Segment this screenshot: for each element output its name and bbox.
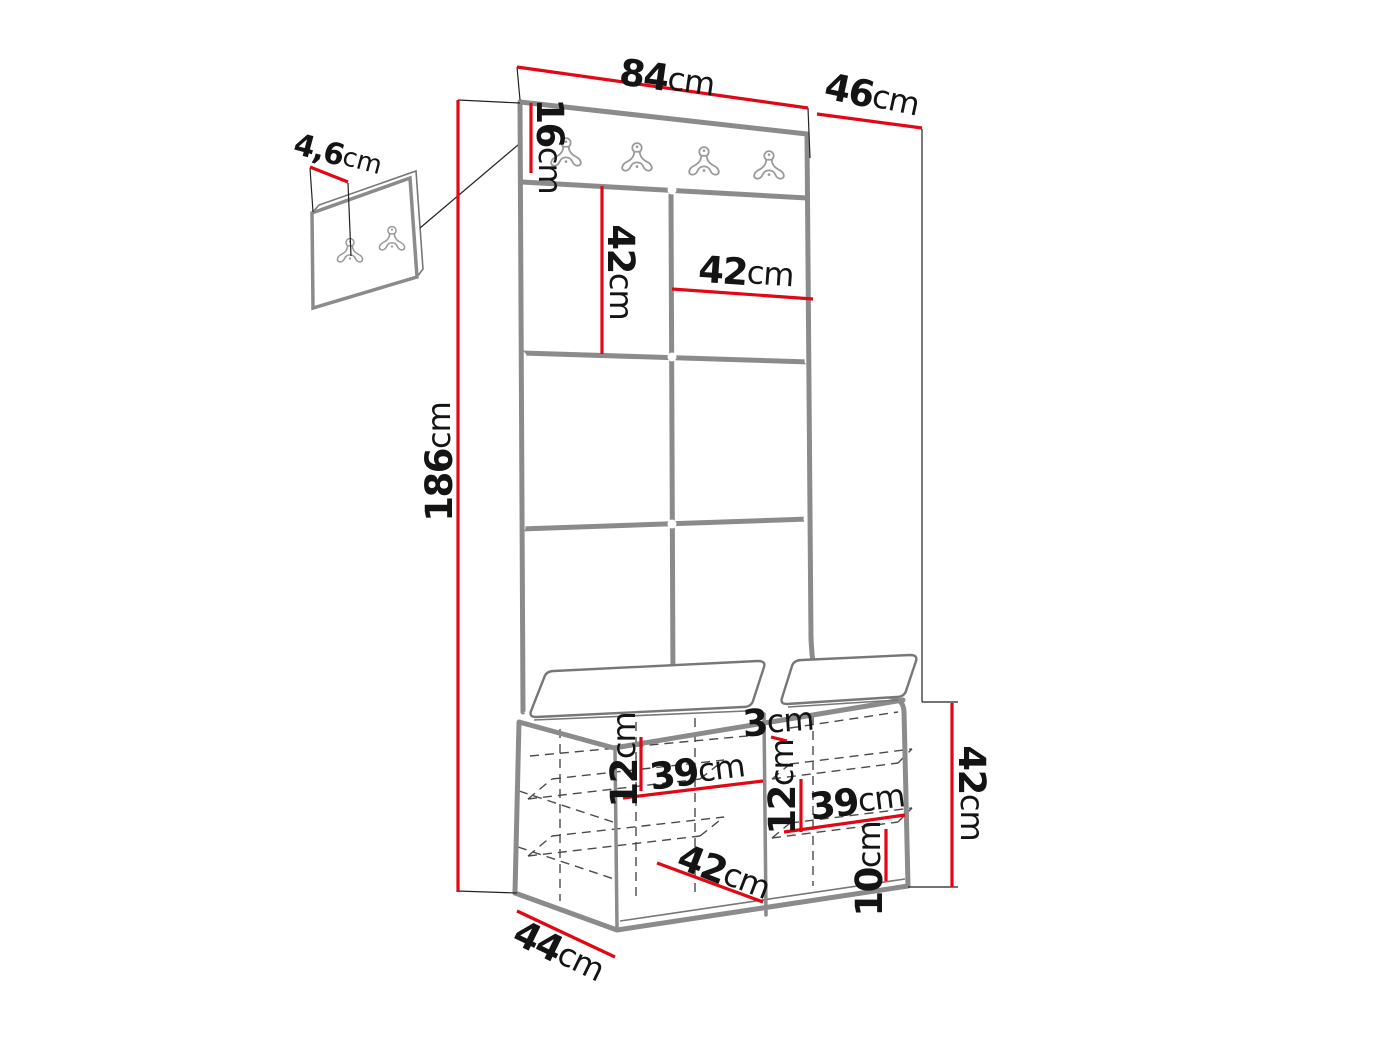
left-seat-cushion	[531, 661, 765, 717]
diagram-canvas: 84cm 46cm 16cm 4,6cm 186cm 42cm 42cm 3cm…	[0, 0, 1384, 1038]
label-rail-height: 16cm	[529, 98, 572, 193]
label-cushion-gap: 3cm	[741, 697, 815, 745]
pointer-line	[420, 139, 525, 228]
label-plinth-height: 10cm	[848, 821, 891, 916]
ext-46small-left	[310, 168, 313, 212]
bracket-186-top	[458, 100, 520, 103]
label-small-panel-offset: 4,6cm	[290, 126, 386, 183]
ext-84-left	[517, 67, 520, 100]
label-left-inner-height: 12cm	[603, 712, 646, 807]
furniture-dimension-diagram: 84cm 46cm 16cm 4,6cm 186cm 42cm 42cm 3cm…	[0, 0, 1384, 1038]
tile-column-divider	[671, 195, 673, 688]
label-tile-width: 42cm	[697, 247, 795, 297]
right-seat-cushion	[782, 655, 917, 704]
label-tile-height: 42cm	[600, 224, 643, 319]
main-panel	[517, 102, 894, 712]
label-total-height: 186cm	[418, 402, 461, 522]
label-right-inner-height: 12cm	[761, 739, 804, 834]
label-panel-width: 84cm	[617, 50, 717, 106]
label-bench-height: 42cm	[951, 745, 994, 840]
bracket-186-bottom	[457, 891, 517, 893]
